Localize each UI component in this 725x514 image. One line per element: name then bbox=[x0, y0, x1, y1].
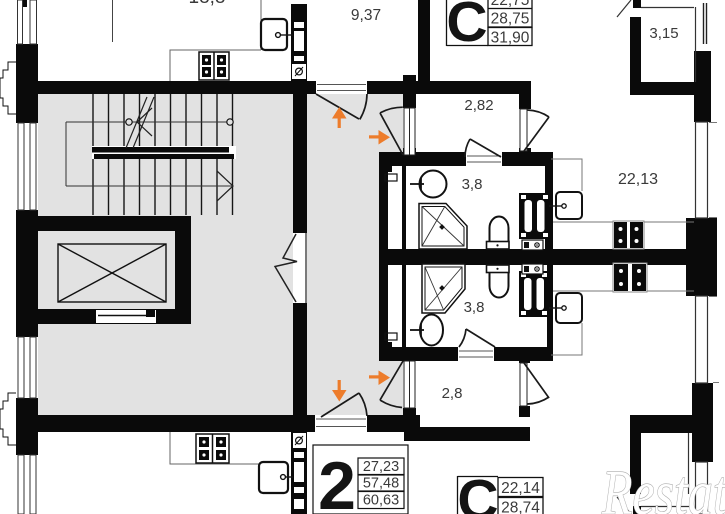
svg-text:27,23: 27,23 bbox=[363, 459, 399, 475]
svg-text:22,75: 22,75 bbox=[491, 0, 530, 9]
svg-text:Restate: Restate bbox=[601, 458, 725, 514]
svg-text:2,8: 2,8 bbox=[442, 385, 463, 402]
svg-text:28,75: 28,75 bbox=[491, 11, 530, 28]
svg-text:3,15: 3,15 bbox=[649, 25, 678, 42]
svg-text:22,13: 22,13 bbox=[618, 171, 658, 188]
svg-text:2,82: 2,82 bbox=[464, 97, 493, 114]
svg-text:C: C bbox=[446, 0, 487, 54]
svg-text:C: C bbox=[457, 468, 498, 514]
svg-text:18,8: 18,8 bbox=[189, 0, 226, 8]
svg-text:31,90: 31,90 bbox=[491, 30, 530, 47]
svg-text:2: 2 bbox=[318, 448, 356, 514]
svg-text:60,63: 60,63 bbox=[363, 493, 399, 509]
svg-text:3,8: 3,8 bbox=[462, 176, 483, 193]
svg-text:28,74: 28,74 bbox=[501, 500, 540, 514]
svg-text:3,8: 3,8 bbox=[464, 299, 485, 316]
svg-text:9,37: 9,37 bbox=[351, 7, 381, 24]
svg-text:57,48: 57,48 bbox=[363, 476, 399, 492]
svg-text:22,14: 22,14 bbox=[501, 480, 540, 497]
